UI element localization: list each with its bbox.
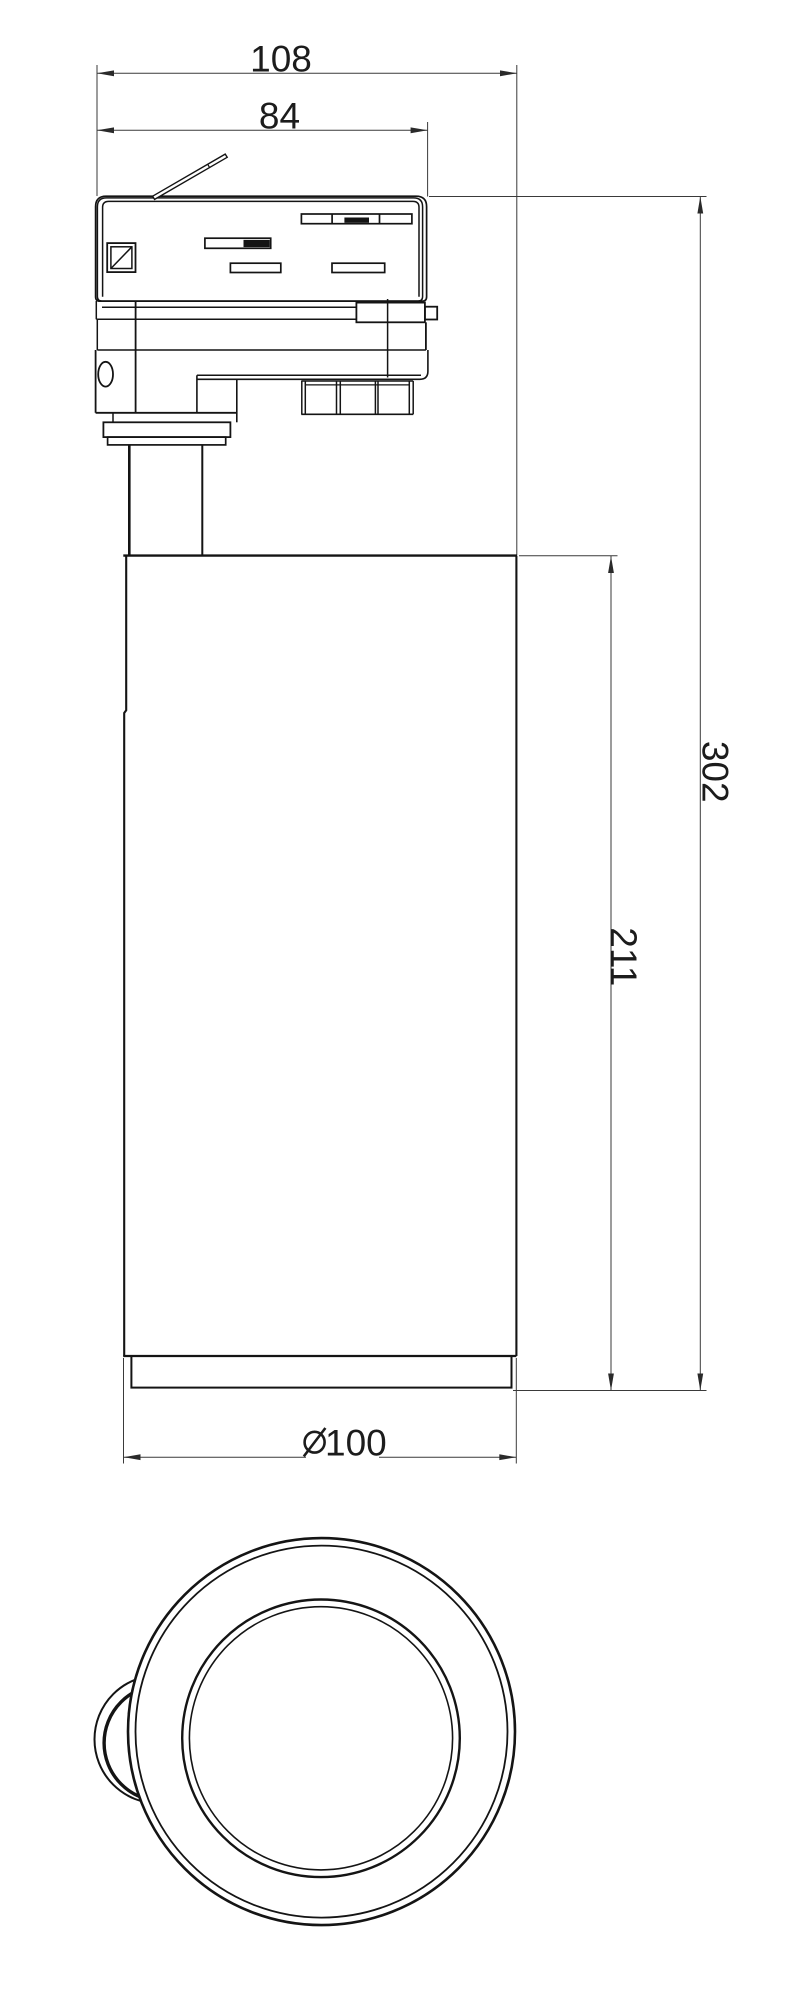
svg-text:84: 84 [259, 96, 300, 137]
svg-text:100: 100 [325, 1423, 387, 1464]
svg-text:108: 108 [250, 39, 312, 80]
svg-text:302: 302 [694, 741, 735, 803]
svg-text:211: 211 [603, 927, 644, 986]
